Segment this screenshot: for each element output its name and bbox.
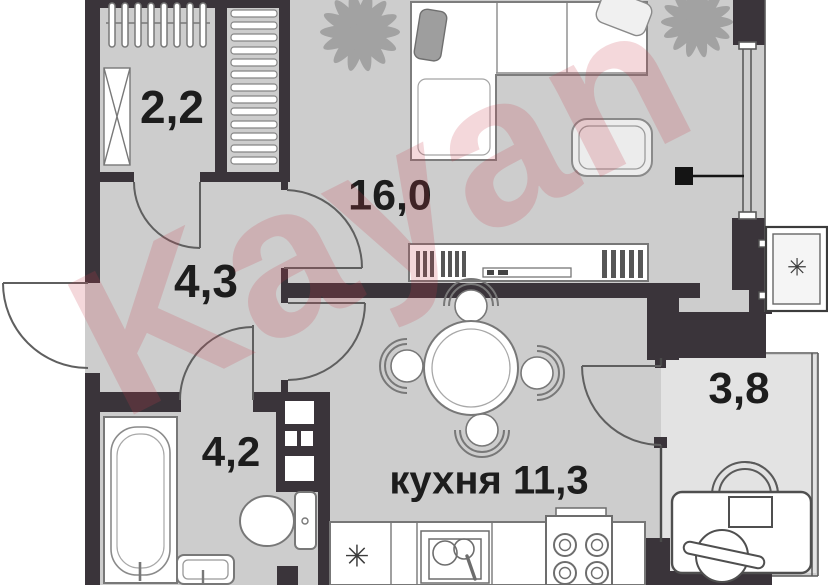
room-label-hallway: 4,3 [174, 254, 238, 308]
bath-sink [177, 555, 234, 584]
stove [546, 508, 612, 585]
toilet [240, 492, 316, 549]
fridge-snowflake-icon: ✳ [344, 540, 369, 575]
room-label-living: 16,0 [348, 172, 432, 221]
floor-plan: 2,2 16,0 4,3 4,2 кухня 11,3 3,8 ✳ ✳ Kaya… [0, 0, 828, 585]
wardrobe-cabinet [104, 68, 130, 165]
bathtub [104, 417, 177, 583]
vent-shaft [276, 392, 322, 492]
ac-snowflake-icon: ✳ [787, 254, 807, 283]
tv-console [409, 244, 648, 281]
room-label-wardrobe: 2,2 [140, 80, 204, 134]
room-label-kitchen: кухня 11,3 [389, 459, 588, 504]
room-label-bathroom: 4,2 [202, 428, 260, 476]
console-media-bar [483, 268, 571, 277]
kitchen-sink [421, 531, 489, 583]
ottoman-rug [572, 119, 652, 176]
dining-table [424, 321, 518, 415]
desk-monitor [729, 497, 772, 527]
room-label-balcony: 3,8 [708, 364, 769, 414]
console-books-left [416, 251, 466, 277]
